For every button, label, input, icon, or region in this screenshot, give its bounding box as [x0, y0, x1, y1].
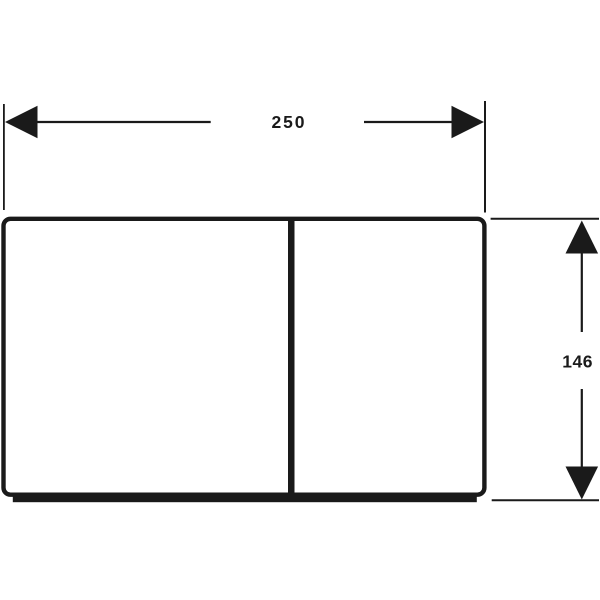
svg-text:146: 146 — [562, 352, 593, 372]
svg-text:250: 250 — [272, 112, 307, 132]
